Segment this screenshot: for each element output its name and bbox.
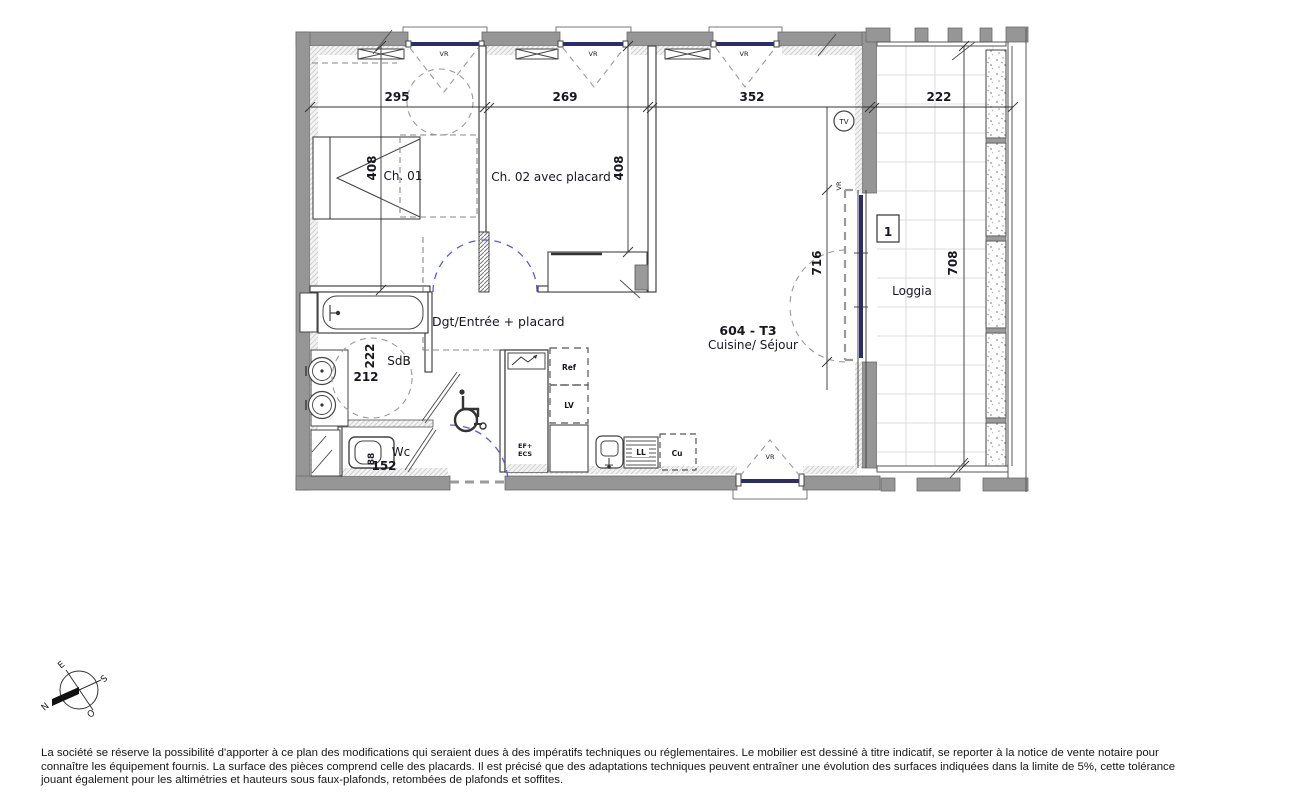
loggia-outer-shell	[1008, 28, 1026, 492]
dishwasher-label: LV	[564, 401, 574, 410]
floor-plan-drawing: 1 VR	[0, 0, 1292, 800]
disclaimer-line-1: La société se réserve la possibilité d'a…	[41, 747, 1291, 761]
compass-e: E	[56, 660, 67, 672]
vr-label-w2: VR	[589, 50, 598, 58]
washer-label: LL	[636, 448, 646, 457]
vr-label-kitchen: VR	[766, 453, 775, 461]
kitchen-cabinet	[550, 425, 588, 472]
sdb-wc-partition-hatched	[338, 420, 433, 427]
water-heater-label-ecs: ECS	[518, 450, 532, 458]
room-label-loggia: Loggia	[892, 284, 932, 298]
tv-icon: TV	[834, 111, 854, 131]
floor-plan-page: 1 VR	[0, 0, 1292, 800]
dim-716: 716	[810, 250, 824, 275]
dim-352: 352	[739, 90, 764, 104]
room-label-entry: Dgt/Entrée + placard	[432, 314, 565, 329]
wheelchair-icon	[455, 389, 486, 431]
placard-ch02	[548, 252, 648, 298]
room-label-ch02: Ch. 02 avec placard	[491, 170, 611, 184]
compass-rose: E S N O	[40, 660, 110, 721]
fridge-label: Ref	[562, 363, 577, 372]
window-glazing	[739, 479, 801, 483]
window-glazing	[561, 42, 625, 46]
dim-408-ch02: 408	[612, 155, 626, 180]
dim-222-top: 222	[926, 90, 951, 104]
disclaimer-line-3: jouant également pour les altimétries et…	[41, 774, 1291, 788]
room-label-ch01: Ch. 01	[384, 169, 423, 183]
cooktop-label: Cu	[672, 449, 683, 458]
water-heater-label-ef: EF+	[518, 442, 532, 450]
bay-opening-dashed	[845, 190, 859, 360]
window-glazing	[409, 42, 481, 46]
electrical-panel-icon	[508, 353, 545, 369]
door-leaf-sdb	[422, 372, 460, 423]
dim-408-ch01: 408	[365, 155, 379, 180]
compass-o: O	[86, 708, 98, 720]
svg-text:TV: TV	[838, 118, 848, 126]
door-leaf-ch01	[479, 232, 489, 292]
loggia-pillars	[986, 50, 1006, 466]
dim-222-sdb: 222	[363, 343, 377, 368]
unit-subtitle: Cuisine/ Séjour	[708, 338, 798, 352]
kitchen-sink	[596, 436, 623, 469]
turning-circle-ch01	[407, 69, 473, 135]
room-label-wc: Wc	[392, 445, 410, 459]
dim-295: 295	[384, 90, 409, 104]
kitchen-block	[505, 348, 696, 472]
disclaimer-text: La société se réserve la possibilité d'a…	[41, 747, 1291, 788]
bathtub	[300, 292, 428, 333]
compass-s: S	[99, 674, 110, 686]
unit-title: 604 - T3	[719, 323, 776, 338]
double-washbasin	[306, 350, 348, 426]
dim-269: 269	[552, 90, 577, 104]
dim-88: 88	[367, 453, 377, 466]
vr-label-w1: VR	[440, 50, 449, 58]
disclaimer-line-2: connaître les équipement fournis. La sur…	[41, 761, 1291, 775]
door-number: 1	[884, 225, 892, 239]
room-label-sdb: SdB	[387, 354, 410, 368]
vr-label-w3: VR	[740, 50, 749, 58]
compass-n: N	[40, 701, 52, 713]
window-glazing	[714, 42, 776, 46]
dim-708: 708	[946, 250, 960, 275]
dim-212: 212	[353, 370, 378, 384]
vr-label-bay: VR	[835, 181, 843, 190]
room-labels: Ch. 01 Ch. 02 avec placard Dgt/Entrée + …	[384, 169, 932, 459]
